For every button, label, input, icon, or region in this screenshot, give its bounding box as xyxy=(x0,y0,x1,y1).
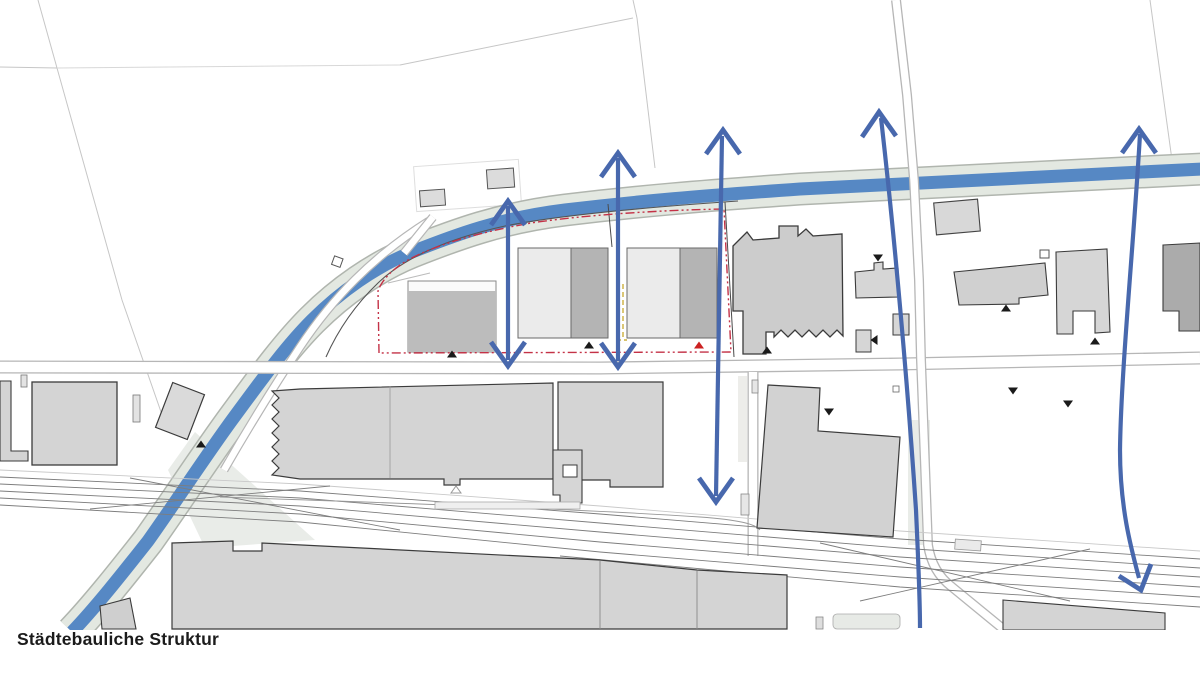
courtyard xyxy=(563,465,577,477)
site-building-a-hall xyxy=(408,291,496,352)
south-industrial-hall xyxy=(272,383,553,485)
west-edge-building xyxy=(0,381,28,461)
east-shed xyxy=(856,330,871,352)
marker-triangle-down xyxy=(1063,401,1073,408)
marker-triangle-up xyxy=(1001,305,1011,312)
farm-building xyxy=(419,189,445,207)
small-structure xyxy=(893,386,899,392)
caption-title: Städtebauliche Struktur xyxy=(17,629,219,650)
east-slab-building xyxy=(954,263,1048,305)
north-building xyxy=(934,199,981,235)
marker-triangle-down xyxy=(1008,388,1018,395)
site-building-b-dark xyxy=(571,248,608,338)
marker-triangle-down xyxy=(873,255,883,262)
edge-building xyxy=(1163,243,1200,331)
rail-platform xyxy=(435,502,580,509)
factory-sawtooth xyxy=(733,226,843,354)
rotated-building xyxy=(156,383,205,440)
buildings xyxy=(0,168,1200,630)
roadside-shed xyxy=(741,494,749,515)
marker-triangle-left xyxy=(871,335,878,345)
small-structure xyxy=(332,256,344,268)
marker-triangle-outline xyxy=(451,486,461,493)
site-plan-svg xyxy=(0,0,1200,630)
main-street xyxy=(0,358,1200,368)
marker-triangle-up xyxy=(1090,338,1100,345)
blue-arrow-head xyxy=(862,112,896,137)
page: Städtebauliche Struktur xyxy=(0,0,1200,675)
roadside-shed xyxy=(752,380,758,393)
marker-triangle-up-red xyxy=(694,342,704,349)
vegetation xyxy=(738,376,747,462)
map-canvas xyxy=(0,0,1200,630)
field-boundaries xyxy=(637,18,655,168)
site-building-c xyxy=(627,248,680,338)
south-rail-hall xyxy=(172,541,787,629)
field-boundaries xyxy=(0,67,57,68)
site-building-c-dark xyxy=(680,248,717,338)
field-boundaries xyxy=(57,68,168,432)
field-boundaries xyxy=(400,18,633,65)
field-boundaries xyxy=(57,65,400,68)
small-structure xyxy=(955,539,982,551)
railway xyxy=(820,543,1070,601)
field-boundaries xyxy=(1150,0,1172,160)
small-structure xyxy=(1040,250,1049,258)
site-building-b xyxy=(518,248,571,338)
southeast-slab xyxy=(1003,600,1165,630)
small-structure xyxy=(816,617,823,629)
east-annex xyxy=(855,262,899,298)
roadside-shed xyxy=(133,395,140,422)
farm-building xyxy=(486,168,514,189)
marker-triangle-down xyxy=(824,409,834,416)
l-shaped-building xyxy=(757,385,900,537)
marker-triangle-up xyxy=(584,342,594,349)
east-tall-building xyxy=(1056,249,1110,334)
field-boundaries xyxy=(633,0,637,18)
west-hall xyxy=(32,382,117,465)
small-structure xyxy=(833,614,900,629)
roadside-shed xyxy=(21,375,27,387)
field-boundaries xyxy=(38,0,57,68)
